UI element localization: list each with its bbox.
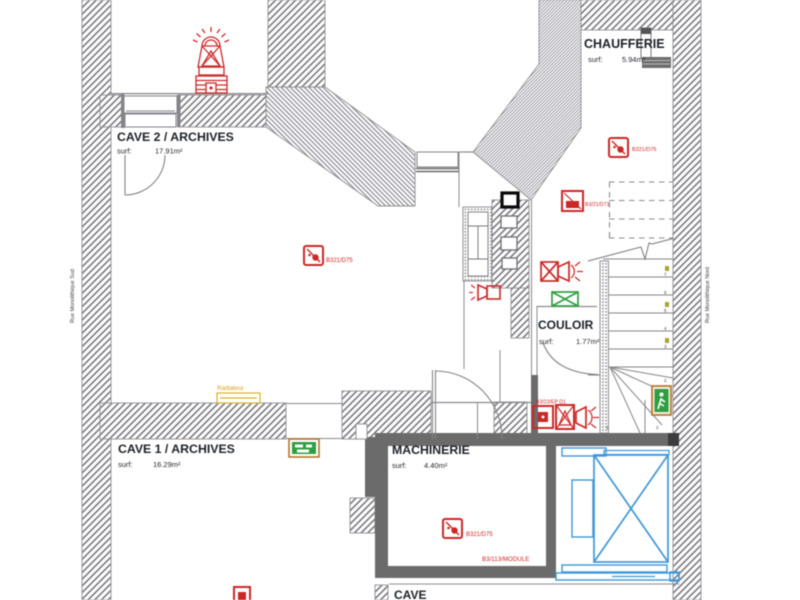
svg-text:MACHINERIE: MACHINERIE — [392, 443, 470, 457]
svg-text:CAVE: CAVE — [394, 588, 426, 600]
svg-text:surf:: surf: — [392, 461, 407, 470]
svg-text:Radiateur: Radiateur — [217, 385, 244, 392]
svg-text:5.94m²: 5.94m² — [622, 55, 646, 64]
svg-text:surf:: surf: — [117, 147, 132, 156]
svg-text:17.91m²: 17.91m² — [155, 147, 183, 156]
svg-text:COULOIR: COULOIR — [538, 318, 594, 332]
svg-text:B3/113/MODULE: B3/113/MODULE — [482, 556, 529, 563]
svg-text:CHAUFFERIE: CHAUFFERIE — [584, 37, 665, 51]
svg-text:CAVE 1 / ARCHIVES: CAVE 1 / ARCHIVES — [118, 442, 235, 456]
svg-text:Rue Monolithique Nord: Rue Monolithique Nord — [705, 267, 711, 323]
svg-text:16.29m²: 16.29m² — [153, 460, 181, 469]
svg-text:B321/D75: B321/D75 — [632, 147, 656, 153]
svg-text:B3/21/D71: B3/21/D71 — [585, 202, 610, 208]
svg-text:CAVE 2 / ARCHIVES: CAVE 2 / ARCHIVES — [117, 130, 234, 144]
svg-text:Rue Monolithique Sud: Rue Monolithique Sud — [70, 269, 76, 323]
svg-text:4.40m²: 4.40m² — [424, 461, 448, 470]
svg-text:B321/D75: B321/D75 — [466, 532, 493, 538]
svg-text:B321/D75: B321/D75 — [326, 258, 353, 264]
svg-text:1.77m²: 1.77m² — [576, 337, 600, 346]
svg-text:surf:: surf: — [118, 460, 133, 469]
svg-text:surf:: surf: — [539, 337, 554, 346]
svg-text:surf:: surf: — [588, 55, 603, 64]
